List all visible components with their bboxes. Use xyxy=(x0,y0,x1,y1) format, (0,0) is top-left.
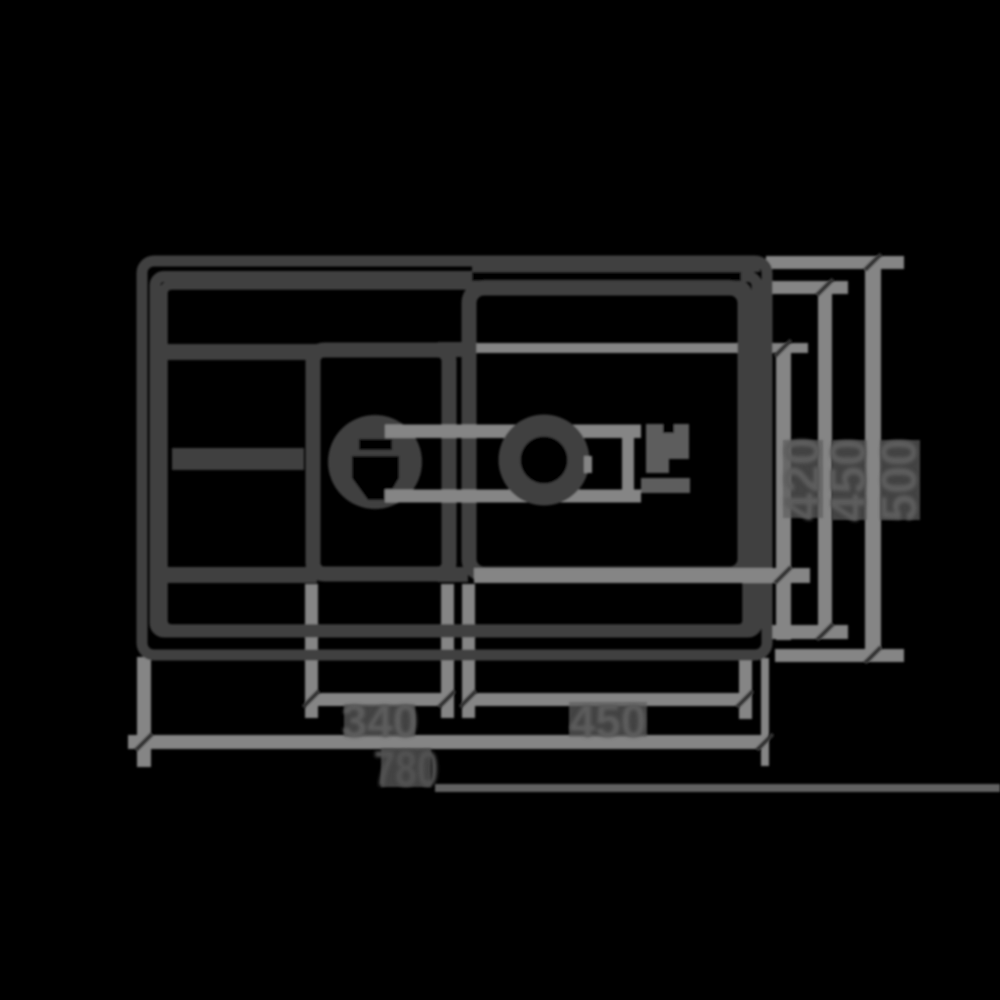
svg-text:340: 340 xyxy=(342,695,419,747)
svg-text:450: 450 xyxy=(570,695,647,747)
svg-text:450: 450 xyxy=(820,438,876,521)
svg-text:500: 500 xyxy=(871,438,927,521)
svg-text:780: 780 xyxy=(373,740,438,797)
